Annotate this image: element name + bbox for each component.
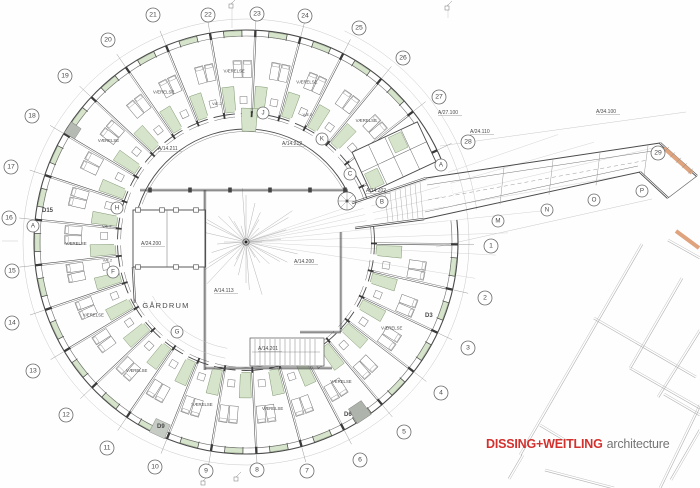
wall-pad — [300, 440, 302, 447]
adjacent-building-wall — [519, 243, 641, 454]
wall-pad — [408, 367, 414, 371]
bath-label: VÆ.2 — [212, 102, 222, 106]
room-label: VÆRELSE — [224, 68, 245, 73]
grid-bubble-label-26: 26 — [399, 55, 407, 62]
wardrobe — [154, 125, 164, 135]
wall-pad — [340, 54, 343, 60]
wall-pad — [446, 288, 453, 290]
grid-bubble-label-27: 27 — [435, 94, 443, 101]
bathroom-pod — [90, 244, 116, 256]
room-label: VÆRELSE — [153, 89, 174, 94]
center-starburst — [207, 220, 246, 243]
wardrobe — [287, 372, 296, 381]
logo-suffix: architecture — [607, 437, 670, 451]
adjacent-building-wall — [663, 395, 699, 416]
wall-pad — [378, 399, 382, 404]
grid-leader — [438, 143, 452, 149]
wardrobe — [270, 99, 278, 107]
bathroom-pod — [370, 273, 398, 291]
section-marker — [229, 4, 233, 8]
grid-letter-label-B: B — [380, 199, 384, 206]
bathroom-pod — [189, 93, 208, 121]
wall-pad — [377, 79, 381, 84]
bathroom-pod — [376, 246, 402, 259]
logo-brand: DISSING+WEITLING — [486, 437, 603, 451]
wardrobe — [110, 291, 119, 300]
wall-pad — [166, 46, 169, 52]
column — [136, 208, 141, 212]
grid-bubble-label-24: 24 — [301, 13, 309, 20]
bed — [65, 226, 83, 236]
entrance-gap — [362, 197, 376, 227]
door-label: D9 — [157, 424, 165, 430]
ref-label: A/14.200 — [294, 259, 314, 265]
wardrobe — [240, 96, 247, 103]
grid-bubble-label-12: 12 — [62, 412, 70, 419]
wall-pad — [210, 33, 211, 40]
room-label: VÆRELSE — [191, 402, 212, 407]
bathroom-pod — [134, 125, 160, 151]
grid-leader — [345, 431, 352, 444]
grid-bubble-label-22: 22 — [204, 12, 212, 19]
wardrobe — [144, 341, 154, 351]
wall-pad — [359, 185, 364, 188]
grid-bubble-label-11: 11 — [103, 445, 110, 452]
grid-bubble-label-25: 25 — [355, 25, 363, 32]
ramp-hatch — [405, 187, 408, 219]
center-starburst — [246, 242, 260, 263]
wardrobe — [258, 379, 266, 387]
wall-pad — [45, 175, 52, 177]
room-door-gap — [349, 304, 360, 314]
grid-bubble-label-13: 13 — [29, 368, 37, 375]
grid-bubble-label-20: 20 — [104, 37, 112, 44]
bath-label: VÆ.2 — [303, 113, 313, 117]
grid-letter-label-F: F — [111, 269, 115, 276]
adjacent-building-wall — [521, 245, 643, 456]
wardrobe — [339, 340, 349, 350]
center-starburst — [205, 242, 246, 270]
center-starburst — [246, 203, 255, 242]
ref-label: A/14.201 — [258, 346, 278, 352]
wardrobe — [325, 122, 335, 132]
wall-pad — [92, 383, 97, 388]
ref-label: A/24.110 — [470, 129, 490, 135]
room-label: VÆRELSE — [262, 406, 283, 411]
grid-bubble-label-10: 10 — [151, 464, 159, 471]
wardrobe — [227, 379, 235, 387]
adjacent-building-wall — [595, 317, 697, 376]
adjacent-building-wall — [630, 367, 700, 407]
core-rooms — [133, 210, 205, 267]
wall-pad — [299, 37, 301, 44]
room-door-gap — [332, 148, 343, 159]
grid-letter-label-N: N — [545, 207, 549, 214]
balcony-niche — [388, 378, 404, 395]
grid-leader — [383, 405, 393, 417]
ramp-hatch — [420, 182, 423, 218]
spiral-stair-icon — [346, 200, 349, 203]
wardrobe — [124, 318, 134, 328]
logo: DISSING+WEITLINGarchitecture — [486, 437, 670, 451]
ref-label: A/14.113 — [214, 288, 234, 294]
ramp-hatch — [395, 190, 398, 220]
grid-letter-label-O: O — [592, 197, 597, 204]
ref-label: A/34.100 — [596, 109, 616, 115]
grid-leader — [161, 440, 167, 454]
construction-ray — [246, 242, 475, 278]
wall-pad — [359, 296, 364, 299]
wall-pad — [341, 424, 344, 430]
wall-pad — [35, 220, 42, 221]
grid-bubble-label-7: 7 — [305, 468, 309, 475]
wall-pad — [211, 444, 212, 451]
column — [308, 188, 312, 193]
grid-letter-label-H: H — [115, 205, 119, 212]
wall-pad — [408, 111, 414, 115]
grid-bubble-label-3: 3 — [466, 345, 470, 352]
bed — [407, 269, 425, 280]
room-label: VÆRELSE — [356, 118, 377, 123]
grid-bubble-label-9: 9 — [204, 468, 208, 475]
section-marker — [201, 481, 205, 485]
corridor-grid-tick — [500, 167, 504, 204]
grid-leader — [414, 372, 426, 381]
adjacent-building-wall — [629, 277, 681, 367]
wardrobe — [169, 359, 179, 369]
grid-leader — [344, 39, 351, 52]
plan-drawing: 1234567891011121314151617181920212223242… — [0, 0, 700, 488]
construction-ray — [246, 176, 620, 242]
room-label: VÆRELSE — [98, 138, 119, 143]
grid-letter-label-M: M — [495, 218, 500, 225]
wardrobe — [359, 317, 369, 327]
room-label: VÆRELSE — [330, 379, 351, 384]
bed — [269, 62, 280, 80]
corridor-wall — [426, 143, 660, 178]
grid-bubble-label-5: 5 — [402, 429, 406, 436]
wardrobe — [115, 172, 124, 181]
wall-pad — [116, 256, 122, 257]
bed — [408, 260, 426, 271]
wall-pad — [122, 282, 128, 284]
bath-label: VÆ.2 — [102, 224, 112, 228]
adjacent-building-wall — [508, 454, 522, 478]
door-label: D15 — [42, 208, 54, 214]
wall-pad — [64, 348, 70, 352]
grid-bubble-label-17: 17 — [7, 164, 15, 171]
column — [174, 208, 179, 212]
grid-letter-label-G: G — [175, 329, 180, 336]
center-starburst — [199, 219, 246, 242]
grid-bubble-label-23: 23 — [253, 11, 261, 18]
grid-letter-label-J: J — [261, 110, 264, 117]
ref-label: A/14.211 — [158, 146, 178, 152]
adjacent-building-wall — [631, 279, 683, 369]
adjacent-building-wall — [670, 429, 699, 479]
bed — [229, 406, 239, 424]
adjacent-building-wall — [659, 331, 700, 398]
column — [194, 208, 199, 212]
room-door-gap — [181, 124, 191, 135]
wall-pad — [303, 126, 306, 131]
center-starburst — [209, 242, 246, 264]
room-door-gap — [207, 114, 215, 124]
grid-leader — [30, 170, 44, 175]
wall-pad — [116, 228, 122, 229]
room-door-gap — [287, 118, 296, 129]
column — [194, 265, 199, 269]
center-starburst — [246, 242, 249, 290]
adjacent-building-wall — [672, 431, 700, 481]
column — [228, 188, 232, 193]
ref-label: A/14.212 — [282, 141, 302, 147]
bathroom-pod — [99, 179, 127, 199]
center-starburst — [229, 216, 246, 242]
bathroom-pod — [175, 358, 196, 386]
wardrobe — [180, 109, 189, 118]
floorplan-canvas: 1234567891011121314151617181920212223242… — [0, 0, 700, 488]
grid-leader — [302, 448, 306, 462]
center-starburst — [246, 212, 260, 242]
bed — [219, 405, 230, 423]
center-starburst — [217, 242, 246, 244]
wall-pad — [197, 358, 199, 364]
room-label: VÆRELSE — [296, 79, 317, 84]
column — [188, 188, 192, 193]
center-point — [245, 241, 247, 243]
grid-leader — [438, 333, 452, 339]
grid-leader — [19, 265, 34, 267]
grid-leader — [118, 418, 126, 430]
door-label: D3 — [425, 313, 433, 319]
center-starburst — [242, 188, 246, 242]
adjacent-building-wall — [510, 456, 524, 480]
section-marker — [236, 472, 241, 477]
column — [136, 265, 141, 269]
wall-pad — [431, 330, 437, 333]
door-label: D6 — [344, 412, 352, 418]
section-marker — [234, 477, 238, 481]
room-door-gap — [235, 365, 242, 374]
grid-bubble-label-21: 21 — [149, 12, 157, 19]
grid-letter-label-C: C — [348, 171, 353, 178]
ramp-hatch — [400, 189, 403, 220]
exit-stair-wedge — [348, 401, 371, 424]
hall-green-wall — [241, 108, 257, 131]
center-starburst — [238, 242, 246, 275]
wall-pad — [122, 201, 128, 203]
grid-leader — [30, 310, 44, 315]
bathroom-pod — [282, 92, 300, 120]
grid-bubble-label-6: 6 — [358, 457, 362, 464]
adjacent-building-wall — [668, 239, 700, 257]
ref-label: A/14.202 — [366, 188, 386, 194]
wall-pad — [126, 67, 130, 73]
adjacent-building-wall — [545, 469, 614, 487]
grid-leader — [414, 102, 426, 111]
center-starburst — [207, 242, 246, 284]
bathroom-pod — [358, 300, 386, 322]
grid-bubble-label-16: 16 — [5, 215, 13, 222]
grid-leader — [117, 54, 126, 66]
adjacent-building-wall — [630, 369, 700, 409]
section-marker — [445, 6, 449, 10]
wall-pad — [197, 121, 199, 127]
grid-bubble-label-14: 14 — [8, 320, 16, 327]
grid-bubble-label-18: 18 — [28, 113, 36, 120]
room-label: VÆRELSE — [83, 313, 104, 318]
courtyard-label: GÅRDRUM — [142, 301, 189, 310]
grid-letter-label-P: P — [640, 188, 644, 195]
balcony-niche — [35, 233, 40, 251]
wardrobe — [197, 372, 206, 381]
section-marker — [447, 1, 452, 6]
bed — [66, 262, 84, 273]
adjacent-building-wall — [657, 329, 699, 396]
wall-pad — [224, 365, 225, 371]
grid-leader — [382, 66, 392, 78]
ramp-hatch — [415, 184, 418, 218]
center-starburst — [246, 242, 298, 254]
grid-bubble-label-19: 19 — [61, 73, 69, 80]
grid-leader — [19, 218, 34, 220]
wardrobe — [100, 232, 107, 239]
ramp-hatch — [390, 192, 393, 221]
column — [174, 265, 179, 269]
grid-bubble-label-8: 8 — [255, 467, 259, 474]
room-door-gap — [235, 110, 242, 119]
room-door-gap — [181, 349, 191, 360]
wall-pad — [127, 411, 131, 417]
grid-leader — [454, 290, 469, 293]
grid-bubble-label-28: 28 — [464, 139, 472, 146]
wall-pad — [278, 115, 280, 121]
center-starburst — [246, 211, 292, 242]
grid-bubble-label-2: 2 — [483, 295, 487, 302]
construction-ray — [246, 233, 508, 242]
wall-pad — [91, 97, 96, 102]
ref-label: A/27.100 — [438, 110, 458, 116]
room-door-gap — [361, 280, 371, 289]
wardrobe — [382, 261, 390, 269]
grid-leader — [160, 31, 166, 45]
grid-bubble-label-1: 1 — [489, 243, 493, 250]
grid-leader — [301, 22, 305, 36]
adjacent-building-wall — [593, 319, 695, 378]
column — [268, 188, 272, 193]
grid-bubble-label-29: 29 — [654, 150, 662, 157]
room-door-gap — [368, 254, 378, 261]
center-starburst — [246, 242, 287, 262]
radial-wall — [126, 348, 173, 417]
grid-bubble-label-15: 15 — [8, 268, 16, 275]
wardrobe — [132, 147, 142, 157]
room-label: VÆRELSE — [65, 241, 86, 246]
bed — [67, 271, 85, 283]
wall-pad — [224, 113, 225, 119]
balcony-niche — [101, 76, 118, 92]
balcony-niche — [387, 88, 403, 105]
entrance-wall — [355, 218, 424, 227]
vestibule-wall — [668, 176, 697, 198]
ref-label: A/24.200 — [141, 241, 161, 247]
ramp-hatch — [410, 185, 413, 218]
bathroom-pod — [239, 372, 251, 398]
wall-pad — [45, 308, 52, 310]
bath-label: VÆ.2 — [103, 258, 113, 262]
toilet-block — [352, 122, 436, 192]
room-door-gap — [114, 239, 123, 245]
room-label: VÆRELSE — [381, 326, 402, 331]
wardrobe — [373, 290, 382, 299]
wall-pad — [35, 265, 42, 266]
column — [148, 188, 152, 193]
column — [160, 208, 165, 212]
room-label: VÆRELSE — [126, 368, 147, 373]
adjacent-building-wall — [545, 471, 614, 488]
grid-bubble-label-4: 4 — [439, 390, 443, 397]
wall-pad — [167, 432, 170, 438]
radial-wall — [375, 243, 458, 244]
